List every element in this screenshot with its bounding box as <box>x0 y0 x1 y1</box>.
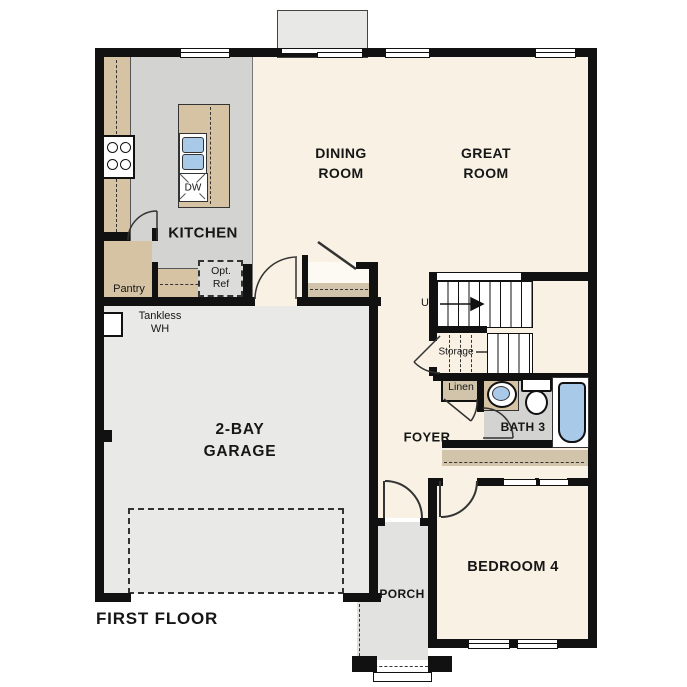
linen-label: Linen <box>448 381 474 393</box>
dishwasher-label: DW <box>184 183 203 194</box>
opt-ref-label: Opt.Ref <box>211 265 231 291</box>
front-door-arc <box>384 481 422 518</box>
foyer-label: FOYER <box>404 430 451 445</box>
porch-label: PORCH <box>379 587 424 601</box>
great-room-label: GREATROOM <box>461 143 511 183</box>
pantry-door-arc <box>128 211 157 240</box>
tankless-wh-label: TanklessWH <box>139 310 182 336</box>
door-swing-overlay <box>0 0 687 687</box>
garage-entry-door-arc <box>255 257 297 299</box>
linen-door-arc <box>444 399 477 421</box>
first-floor-title: FIRST FLOOR <box>96 609 218 629</box>
garage-label: 2-BAYGARAGE <box>204 419 277 463</box>
storage-label: Storage <box>438 347 473 358</box>
first-floor-plan: KITCHEN DININGROOM GREATROOM 2-BAYGARAGE… <box>0 0 687 687</box>
up-label: Up <box>421 297 435 309</box>
pantry-label: Pantry <box>113 283 145 295</box>
bath-label: BATH 3 <box>501 420 546 434</box>
dining-room-label: DININGROOM <box>315 143 366 183</box>
up-arrow <box>440 298 483 310</box>
bedroom-label: BEDROOM 4 <box>467 559 558 575</box>
coat-closet-door <box>318 242 356 269</box>
storage-door-arc <box>414 336 440 373</box>
bedroom-door-arc <box>440 481 477 517</box>
kitchen-label: KITCHEN <box>168 225 237 242</box>
